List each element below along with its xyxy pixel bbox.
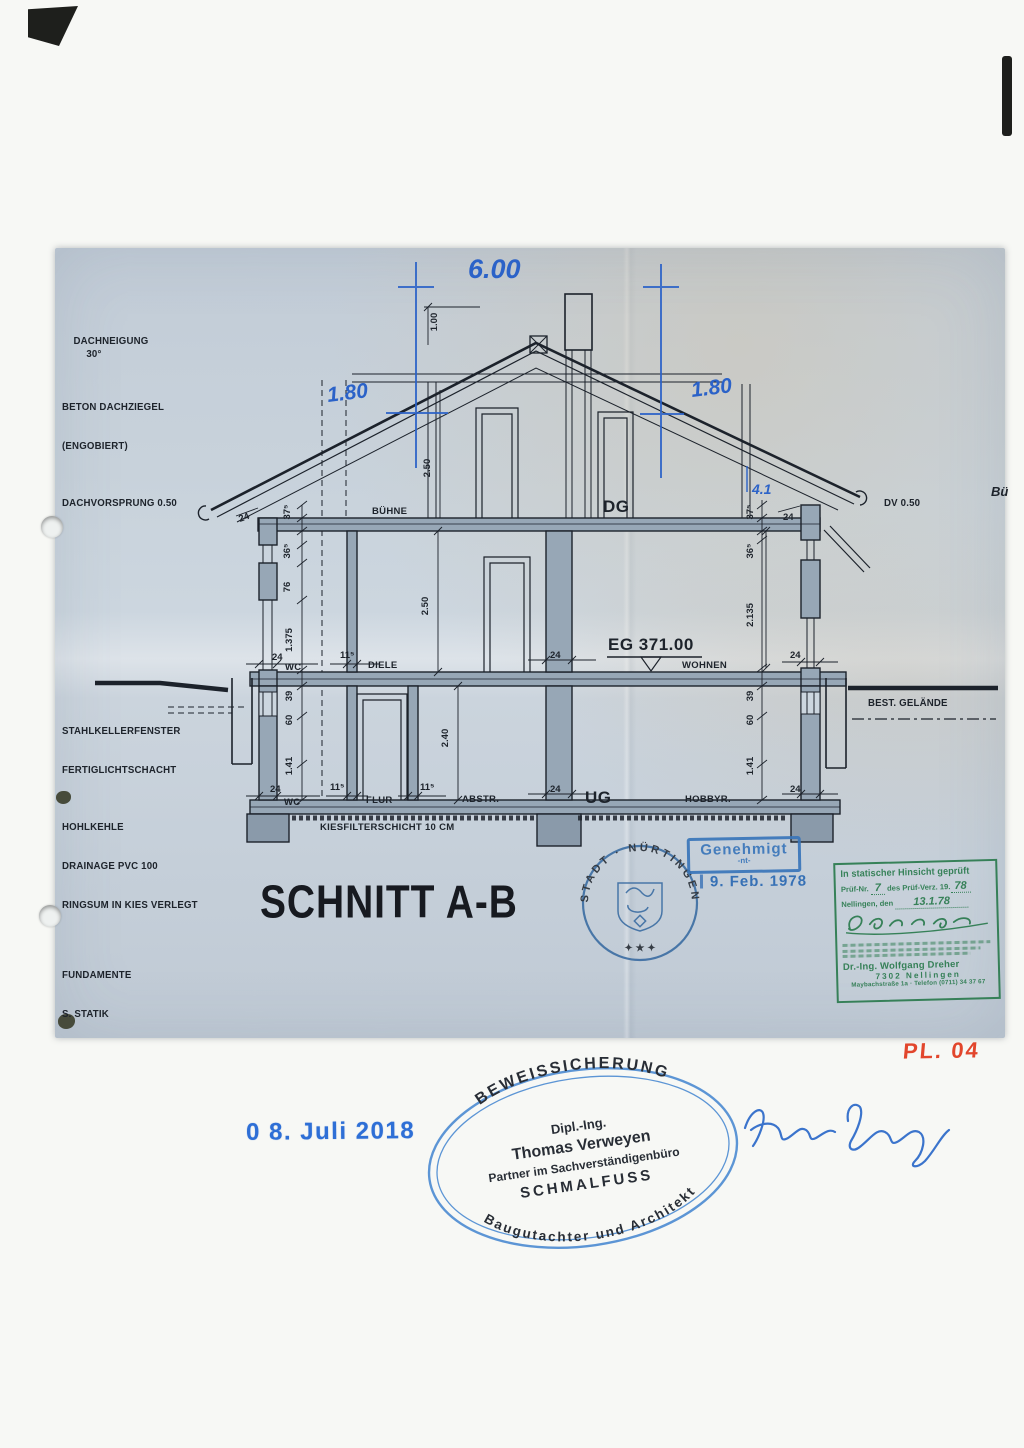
dim-24-eg-left: 24 (272, 652, 283, 663)
genehmigt-stamp: Genehmigt -nt- (687, 836, 802, 874)
dim-37-5-left: 37⁵ (282, 504, 293, 519)
dim-115-ug-1: 11⁵ (330, 782, 345, 793)
label-fundament-block: HOHLKEHLE DRAINAGE PVC 100 RINGSUM IN KI… (62, 795, 198, 1047)
seal-stars: ✦ ★ ✦ (624, 943, 655, 954)
dim-141-right: 1.41 (745, 756, 756, 775)
plan-number: PL. 04 (902, 1037, 981, 1064)
dim-37-5-right: 37⁵ (745, 504, 756, 519)
statik-line: S. STATIK (62, 1008, 198, 1021)
label-kiesfilterschicht: KIESFILTERSCHICHT 10 CM (320, 822, 454, 833)
chimney (565, 294, 592, 518)
dim-36-5-left: 36⁵ (282, 543, 293, 558)
room-diele: DIELE (368, 660, 397, 671)
pen-dim-600: 6.00 (468, 254, 521, 284)
label-gelaende: BEST. GELÄNDE (868, 697, 948, 710)
city-seal-stamp: STADT · NÜRTINGEN ✦ ★ ✦ (579, 841, 701, 960)
dim-ug-240: 2.40 (440, 729, 451, 748)
pen-dim-180-left: 1.80 (326, 379, 370, 407)
room-abstr: ABSTR. (462, 794, 499, 805)
dim-dg-250: 2.50 (420, 597, 431, 616)
dim-76-left: 76 (282, 582, 293, 593)
label-dv: DV 0.50 (884, 497, 920, 510)
dim-24-eg-right: 24 (790, 650, 801, 661)
genehmigt-date: 9. Feb. 1978 (700, 873, 807, 891)
room-buehne: BÜHNE (372, 506, 407, 517)
dim-2135-right: 2.135 (745, 602, 756, 626)
seal-ring-text: STADT · NÜRTINGEN (579, 841, 701, 903)
pruef-fineprint-3 (843, 952, 971, 959)
dim-24-eave-right: 24 (783, 512, 794, 523)
dachziegel-line1: BETON DACHZIEGEL (62, 401, 164, 414)
pruef-row1-value2: 78 (950, 880, 971, 894)
pruef-row1-label: Prüf-Nr. (841, 884, 869, 894)
date-stamp-2018: 0 8. Juli 2018 (246, 1117, 415, 1147)
label-dachziegel: BETON DACHZIEGEL (ENGOBIERT) (62, 375, 164, 479)
dim-24-eg-center: 24 (550, 650, 561, 661)
roof-outline (198, 336, 870, 800)
room-dg: DG (603, 497, 630, 516)
dachneigung-text: DACHNEIGUNG (73, 335, 148, 347)
ringsum-line: RINGSUM IN KIES VERLEGT (62, 899, 198, 912)
label-dachvorsprung: DACHVORSPRUNG 0.50 (62, 497, 177, 510)
hohlkehle-line: HOHLKEHLE (62, 821, 198, 834)
dim-60-right: 60 (745, 715, 756, 726)
room-wohnen: WOHNEN (682, 660, 727, 671)
pruef-title: In statischer Hinsicht geprüft (840, 865, 983, 880)
kellerfenster-line1: STAHLKELLERFENSTER (62, 725, 181, 738)
pruef-signature (841, 907, 992, 937)
dim-39-right: 39 (745, 691, 756, 702)
drawing-title: SCHNITT A-B (260, 876, 518, 929)
window-frames (263, 540, 814, 716)
dachneigung-value: 30° (86, 348, 101, 360)
kellerfenster-line2: FERTIGLICHTSCHACHT (62, 764, 181, 777)
pruef-row1-value: 7 (871, 882, 885, 895)
svg-text:STADT · NÜRTINGEN: STADT · NÜRTINGEN (579, 841, 701, 903)
fundamente-line: FUNDAMENTE (62, 969, 198, 982)
dim-24-ug-left: 24 (270, 784, 281, 795)
structural-review-stamp: In statischer Hinsicht geprüft Prüf-Nr. … (833, 859, 1001, 1003)
dim-115-ug-2: 11⁵ (420, 782, 435, 793)
dim-ridge-100: 1.00 (429, 313, 440, 332)
door-frames (357, 408, 633, 800)
room-flur: FLUR (366, 795, 393, 806)
scanned-plan-page: 37⁵ 36⁵ 76 1.375 39 60 1.41 37⁵ 36⁵ 2.13… (0, 0, 1024, 1448)
dachziegel-line2: (ENGOBIERT) (62, 440, 164, 453)
dim-24-eave-left: 24 (237, 511, 251, 525)
walls-and-slabs (247, 505, 846, 846)
pruef-row1-label2: des Prüf-Verz. 19. (887, 882, 951, 893)
dim-115-eg: 11⁵ (340, 650, 355, 661)
dim-36-5-right: 36⁵ (745, 543, 756, 558)
dim-60-left: 60 (284, 715, 295, 726)
dim-roof-250: 2.50 (422, 459, 433, 478)
room-wc-eg: WC (285, 662, 301, 673)
edge-handwriting: Bü (991, 484, 1008, 499)
room-ug: UG (585, 788, 612, 807)
dim-24-ug-right: 24 (790, 784, 801, 795)
dim-39-left: 39 (284, 691, 295, 702)
label-dachneigung: DACHNEIGUNG 30° (62, 322, 149, 374)
room-wc-ug: WC (284, 797, 300, 808)
oval-surveyor-stamp: BEWEISSICHERUNG Baugutachter und Archite… (415, 1036, 748, 1267)
dim-141-left: 1.41 (284, 756, 295, 775)
pen-dim-41: 4.1 (751, 481, 772, 497)
label-kellerfenster: STAHLKELLERFENSTER FERTIGLICHTSCHACHT (62, 699, 181, 803)
pruef-row2-label: Nellingen, den (841, 899, 893, 909)
signature-thomas-verweyen (745, 1105, 949, 1166)
level-eg-37100: EG 371.00 (608, 635, 694, 654)
pruef-row1: Prüf-Nr. 7 des Prüf-Verz. 19.78 (841, 879, 991, 895)
room-hobbyr: HOBBYR. (685, 794, 731, 805)
drainage-line: DRAINAGE PVC 100 (62, 860, 198, 873)
pen-dim-180-right: 1.80 (690, 374, 734, 402)
seal-shield (618, 883, 662, 931)
dim-24-ug-center: 24 (550, 784, 561, 795)
dim-1375-left: 1.375 (284, 627, 295, 651)
